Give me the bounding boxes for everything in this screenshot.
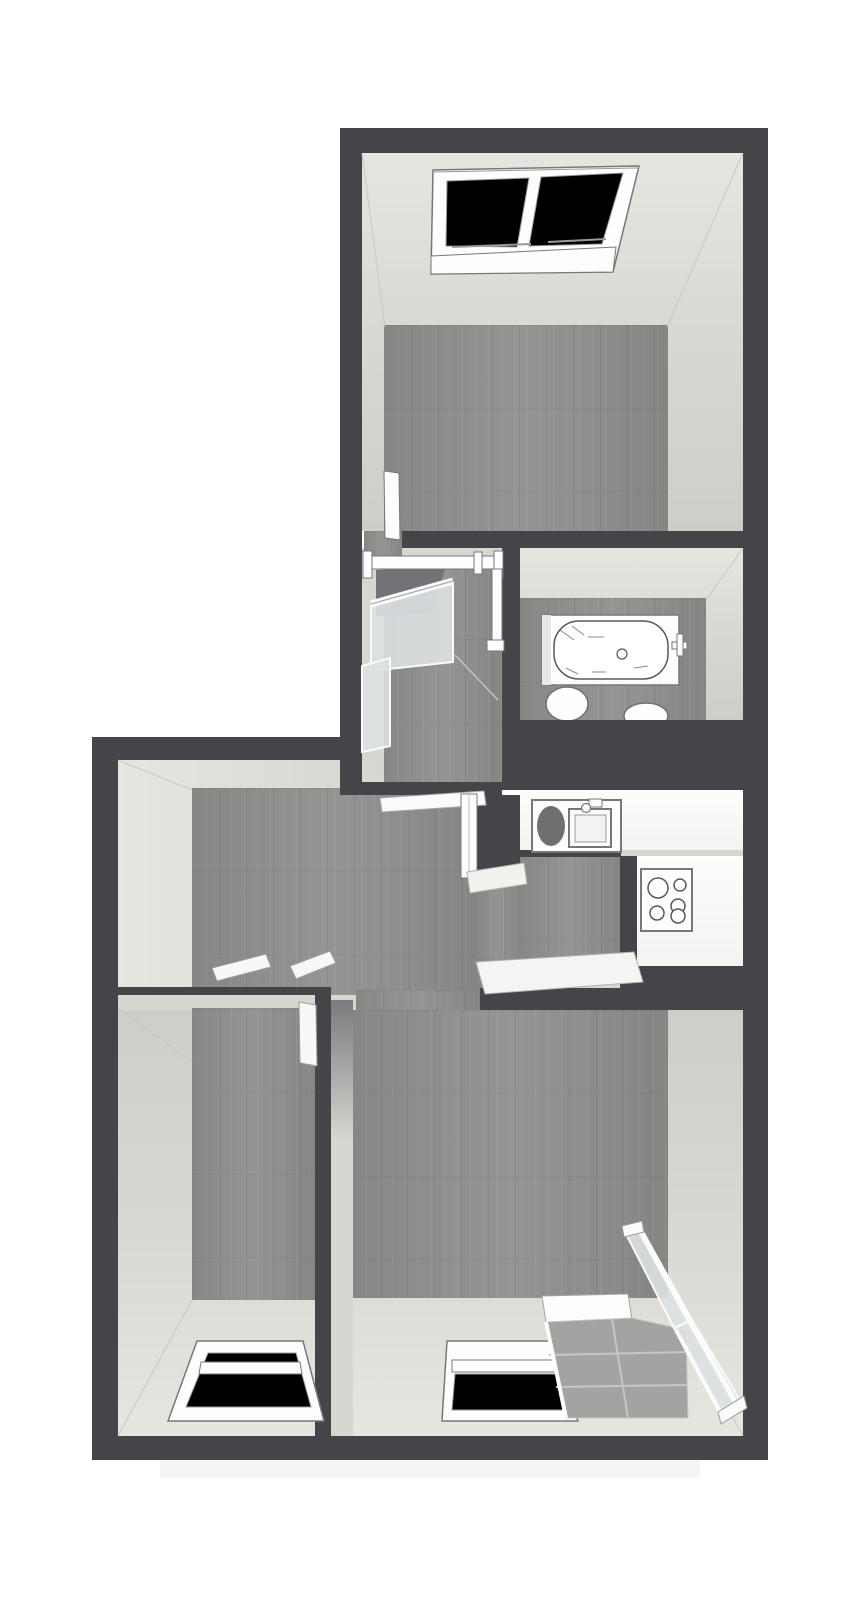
glass-balustrade-stairs: [362, 581, 453, 752]
skylight-window-bedroom: [168, 1341, 324, 1421]
bathtub: [542, 615, 687, 685]
balcony-tiles: [546, 1318, 688, 1418]
toilet: [546, 687, 588, 721]
bedroom-left-door: [299, 1002, 317, 1066]
cooktop: [641, 869, 692, 931]
stair-door-threshold: [380, 791, 486, 878]
floor-plan: [0, 0, 867, 1600]
fixtures-overlay: [0, 0, 867, 1600]
attic-door: [384, 471, 400, 540]
wall-cap-kitchen-south: [476, 952, 643, 994]
hall-door-lintels: [212, 951, 336, 981]
kitchen-sink-unit: [532, 799, 621, 852]
sink-basin: [537, 806, 565, 846]
balcony-sill: [542, 1294, 632, 1322]
bidet: [624, 703, 668, 729]
skylight-window-attic: [431, 166, 639, 274]
balcony: [542, 1221, 747, 1424]
